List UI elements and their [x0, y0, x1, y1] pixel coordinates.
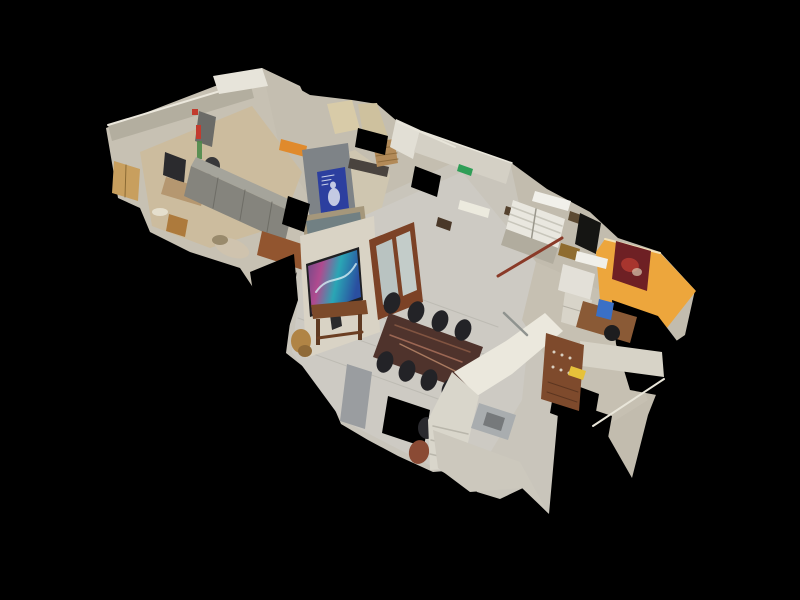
poster-figure-head [330, 182, 336, 189]
dollhouse-3d-view[interactable] [0, 0, 800, 600]
artwork-paint-swirl [632, 268, 642, 276]
reception-clutter [212, 235, 228, 245]
console-bench-leg [316, 319, 320, 345]
console-bench-leg [358, 314, 362, 340]
dried-plant-basket [298, 345, 312, 357]
yellow-room-chair [604, 325, 620, 341]
key-cabinet-knob [569, 357, 572, 360]
key-cabinet-knob [552, 366, 555, 369]
key-cabinet-knob [553, 351, 556, 354]
poster-figure [328, 188, 340, 206]
fire-extinguisher [196, 125, 201, 139]
desk-papers [152, 208, 168, 216]
viewer-canvas[interactable] [0, 0, 800, 600]
key-cabinet-knob [560, 369, 563, 372]
fire-safety-sign [192, 109, 198, 115]
key-cabinet-knob [561, 354, 564, 357]
potted-plant-office [197, 141, 202, 159]
